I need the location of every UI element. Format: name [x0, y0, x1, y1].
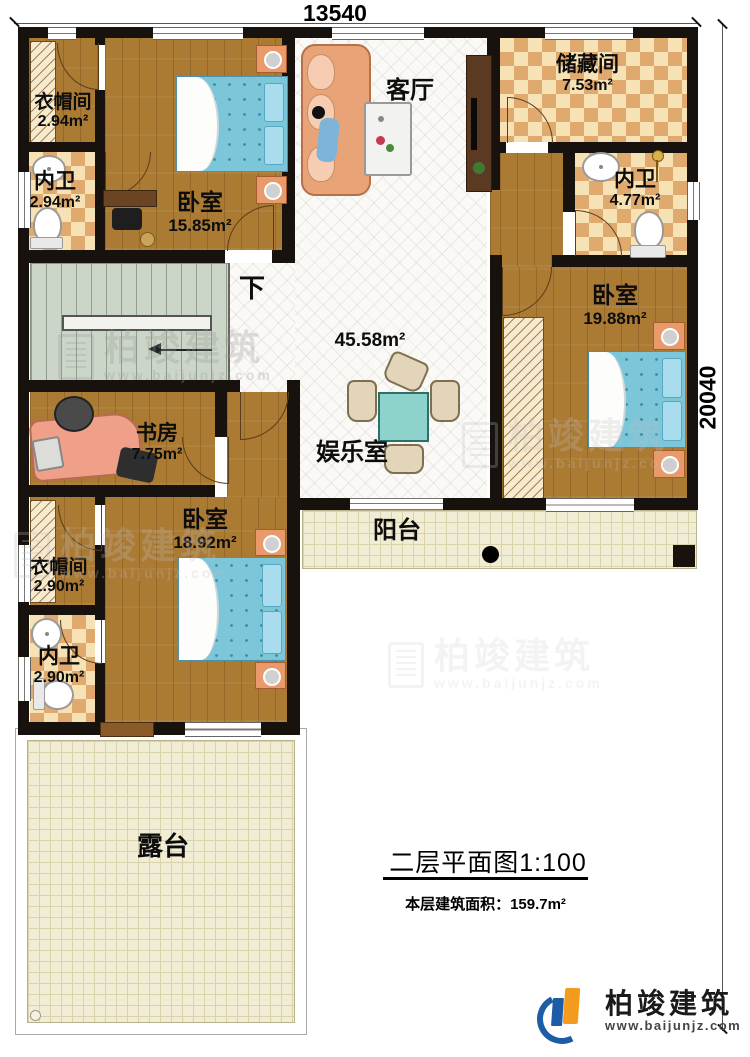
dresser-mirror	[112, 208, 142, 230]
bed-pillow	[264, 126, 284, 166]
nightstand	[256, 45, 287, 73]
room-label-bath-bottom: 内卫 2.90m²	[16, 645, 102, 686]
watermark-building-icon	[388, 642, 424, 688]
coffee-table	[364, 102, 412, 176]
room-label-storage: 储藏间 7.53m²	[535, 53, 640, 94]
wall	[287, 380, 300, 392]
window	[48, 27, 76, 40]
wall	[563, 255, 687, 267]
nightstand	[653, 450, 685, 478]
room-label-bedroom-right: 卧室 19.88m²	[560, 283, 670, 328]
plant	[473, 162, 485, 174]
balcony-column	[482, 546, 499, 563]
desk-chair	[54, 396, 94, 432]
room-label-bedroom-top: 卧室 15.85m²	[145, 190, 255, 235]
hall-area-label: 45.58m²	[322, 330, 418, 351]
person-head	[312, 106, 325, 119]
tv-cabinet	[466, 55, 492, 192]
wardrobe-closet	[503, 317, 544, 499]
terrace-drain	[30, 1010, 41, 1021]
window	[545, 27, 633, 40]
game-table	[378, 392, 429, 442]
nightstand	[255, 662, 286, 689]
room-label-bath-right: 内卫 4.77m²	[592, 168, 678, 209]
wall	[29, 485, 215, 497]
wall	[18, 605, 95, 615]
wall	[215, 392, 227, 437]
terrace-deck	[27, 740, 295, 1023]
stairs-down-label: 下	[232, 274, 272, 303]
wall	[490, 267, 502, 498]
wall	[548, 142, 687, 153]
window	[687, 182, 700, 220]
wall	[490, 255, 502, 267]
corridor-floor	[500, 153, 563, 267]
wall	[29, 250, 225, 263]
sofa-cushion	[307, 54, 335, 90]
table-flowers	[376, 136, 385, 145]
bed-pillow	[662, 401, 682, 441]
dimension-tick	[691, 17, 702, 28]
brand-building-icon	[537, 982, 595, 1040]
stair-direction-arrowhead	[148, 343, 161, 355]
wall	[563, 153, 575, 212]
bed-pillow	[662, 358, 682, 398]
wall	[227, 380, 240, 392]
toilet	[634, 211, 664, 249]
wall	[443, 498, 490, 510]
toilet-tank	[630, 245, 666, 258]
chair	[347, 380, 377, 422]
balcony-pillar	[673, 545, 695, 567]
right-dimension-value: 20040	[695, 360, 722, 436]
window	[185, 722, 261, 737]
bed-blanket	[589, 352, 626, 447]
table-decor	[378, 116, 384, 122]
wall	[18, 27, 29, 735]
bed-pillow	[264, 83, 284, 123]
bed	[176, 76, 288, 172]
room-label-living: 客厅	[365, 78, 455, 105]
stair-handrail	[62, 315, 212, 331]
shower-head	[652, 150, 664, 162]
room-label-cloakroom-top: 衣帽间 2.94m²	[25, 92, 101, 131]
wall	[29, 142, 95, 152]
room-label-terrace: 露台	[118, 832, 208, 861]
nightstand	[256, 176, 287, 204]
room-label-bedroom-bottom: 卧室 18.92m²	[150, 507, 260, 552]
bed	[588, 351, 686, 448]
wall	[95, 497, 105, 505]
tv	[471, 98, 477, 150]
chair	[430, 380, 460, 422]
bed-pillow	[262, 611, 282, 654]
bed	[178, 557, 286, 661]
wall	[300, 498, 350, 510]
terrace-door	[100, 722, 154, 737]
plan-title: 二层平面图1:100	[388, 843, 588, 879]
brand-name: 柏竣建筑	[605, 989, 741, 1018]
wall	[552, 255, 563, 267]
room-label-cloakroom-bottom: 衣帽间 2.90m²	[20, 557, 98, 596]
room-label-bath-top: 内卫 2.94m²	[12, 170, 98, 211]
bed-blanket	[179, 558, 219, 660]
table-flowers	[386, 144, 394, 152]
right-dimension-line	[722, 25, 723, 1031]
wall	[29, 380, 227, 392]
window	[332, 27, 424, 40]
brand-logo: 柏竣建筑 www.baijunjz.com	[537, 982, 741, 1040]
wall	[287, 392, 300, 735]
toilet-tank	[30, 237, 63, 249]
window	[546, 498, 634, 512]
window	[153, 27, 243, 40]
sliding-door	[350, 498, 443, 510]
plan-subtitle: 本层建筑面积：159.7m²	[383, 893, 588, 914]
brand-url: www.baijunjz.com	[605, 1018, 741, 1033]
room-label-study: 书房 7.75m²	[112, 422, 202, 463]
top-dimension-value: 13540	[303, 0, 367, 27]
wall	[687, 27, 698, 510]
watermark: 柏竣建筑 www.baijunjz.com	[388, 638, 603, 692]
printer	[31, 436, 64, 472]
room-label-balcony: 阳台	[352, 518, 442, 545]
stair-railing	[228, 263, 230, 380]
bed-blanket	[177, 77, 219, 171]
floorplan-canvas: 13540 20040	[0, 0, 750, 1057]
bed-pillow	[262, 564, 282, 607]
room-label-game-room: 娱乐室	[302, 440, 402, 467]
title-underline	[383, 877, 588, 880]
stair-direction-arrow	[160, 349, 212, 351]
dimension-tick	[9, 17, 20, 28]
wall	[500, 142, 506, 153]
